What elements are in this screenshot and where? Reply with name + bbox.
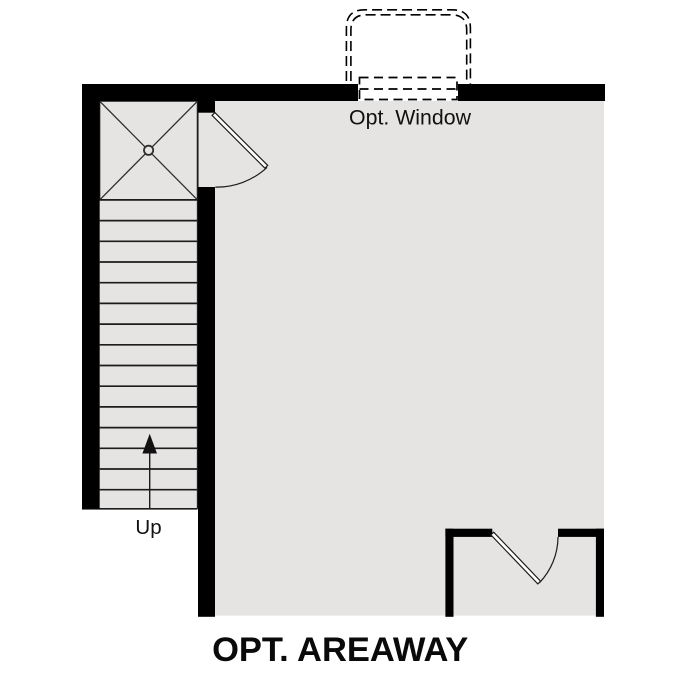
svg-text:Up: Up xyxy=(135,516,161,539)
svg-text:OPT. AREAWAY: OPT. AREAWAY xyxy=(212,631,468,669)
svg-text:Opt. Window: Opt. Window xyxy=(349,106,472,130)
